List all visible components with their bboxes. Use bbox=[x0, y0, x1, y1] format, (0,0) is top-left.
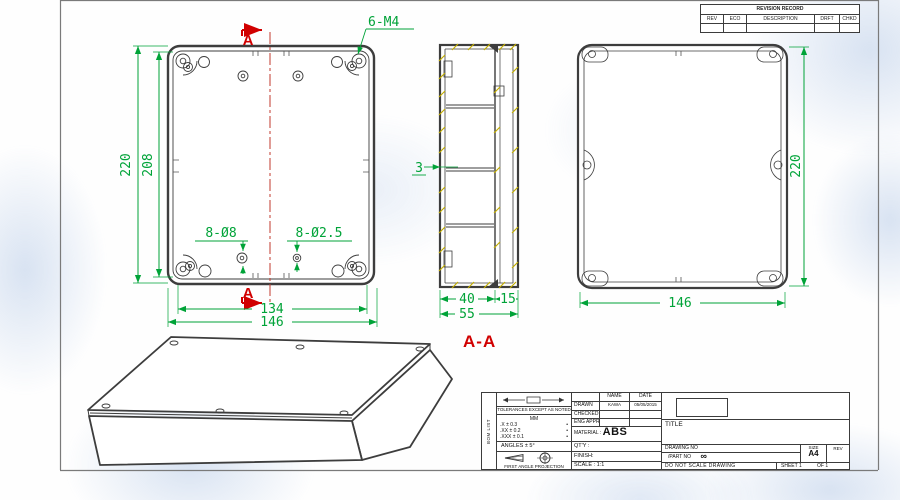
front-view bbox=[168, 46, 374, 284]
qty-row: QT'Y : bbox=[572, 442, 662, 452]
isometric-view bbox=[88, 337, 452, 465]
title-block-side-strip: BOM LIST bbox=[482, 393, 497, 469]
title-row: TITLE bbox=[662, 419, 849, 444]
name-header: NAME bbox=[600, 393, 630, 402]
dim-lid-depth: 15 bbox=[500, 292, 516, 307]
side-strip-label: BOM LIST bbox=[482, 393, 496, 469]
label-thread-holes: 6-M4 bbox=[368, 15, 399, 30]
dim-cover-height: 220 bbox=[789, 154, 804, 177]
dim-total-depth: 55 bbox=[459, 307, 475, 322]
size-cell: SIZE A4 bbox=[801, 445, 827, 462]
size-value: A4 bbox=[801, 451, 826, 457]
side-section-view bbox=[440, 45, 518, 287]
dimension-symbol-cell bbox=[497, 393, 572, 407]
logo-area bbox=[662, 393, 849, 419]
col-rev: REV bbox=[701, 15, 723, 23]
drawing-no-label: DRAWING NO bbox=[662, 445, 801, 453]
drawing-no-area: DRAWING NO /PART NO ∞ SIZE A4 REV bbox=[662, 444, 849, 462]
tolerance-heading: TOLERANCES EXCEPT AS NOTED bbox=[497, 407, 572, 415]
drawn-label: DRAWN bbox=[572, 402, 600, 411]
part-no-row: /PART NO ∞ bbox=[662, 453, 801, 462]
projection-symbol-cell bbox=[497, 452, 572, 464]
col-eco: ECO bbox=[723, 15, 746, 23]
first-angle-projection-icon bbox=[497, 452, 570, 464]
dim-front-inner-height: 208 bbox=[141, 153, 156, 176]
tolerance-row: .XXX ± 0.1 bbox=[500, 434, 524, 440]
section-letter-top: A bbox=[243, 32, 254, 49]
section-letter-bottom: A bbox=[243, 285, 254, 302]
sheet-label: SHEET 1 bbox=[777, 463, 817, 469]
scale-row: SCALE : 1:1 bbox=[572, 462, 662, 469]
finish-row: FINISH: bbox=[572, 452, 662, 462]
sheet-of-label: OF 1 bbox=[817, 463, 849, 469]
drawn-name: KAWA bbox=[600, 402, 630, 411]
col-description: DESCRIPTION bbox=[746, 15, 814, 23]
checked-label: CHECKED bbox=[572, 411, 600, 419]
drawn-date: 05/05/2015 bbox=[630, 402, 662, 411]
tolerance-dot: • bbox=[566, 434, 568, 440]
dim-cover-width: 146 bbox=[668, 296, 691, 311]
do-not-scale-note: DO NOT SCALE DRAWING bbox=[662, 463, 777, 469]
part-no-value: ∞ bbox=[700, 453, 706, 461]
angles-tolerance: ANGLES ± 5° bbox=[497, 442, 572, 452]
dimension-symbol-icon bbox=[497, 393, 570, 406]
bottom-row: DO NOT SCALE DRAWING SHEET 1 OF 1 bbox=[662, 462, 849, 469]
date-header: DATE bbox=[630, 393, 662, 402]
dim-wall-thickness: 3 bbox=[415, 161, 423, 176]
revision-record-empty-row bbox=[701, 23, 859, 32]
eng-appr-label: ENG APPR bbox=[572, 419, 600, 427]
col-drft: DRFT bbox=[814, 15, 839, 23]
material-value: ABS bbox=[603, 427, 628, 438]
tolerance-unit: MM bbox=[530, 416, 538, 422]
part-no-label: /PART NO bbox=[668, 454, 691, 460]
dim-base-depth: 40 bbox=[459, 292, 475, 307]
revision-record-title-row: REVISION RECORD bbox=[701, 5, 859, 14]
col-chkd: CHKD bbox=[839, 15, 859, 23]
drawing-sheet: { "colors": { "dimension_green": "#00a33… bbox=[0, 0, 900, 500]
label-large-holes: 8-Ø8 bbox=[205, 226, 236, 241]
revision-record-header-row: REV ECO DESCRIPTION DRFT CHKD bbox=[701, 14, 859, 23]
revision-record-title: REVISION RECORD bbox=[701, 5, 859, 14]
material-label: MATERIAL : bbox=[574, 430, 601, 436]
revision-record-table: REVISION RECORD REV ECO DESCRIPTION DRFT… bbox=[700, 4, 860, 33]
rev-cell: REV bbox=[827, 445, 849, 462]
dim-front-outer-height: 220 bbox=[119, 153, 134, 176]
projection-label: FIRST ANGLE PROJECTION bbox=[497, 464, 572, 469]
tolerance-table: MM .X ± 0.3• .XX ± 0.2• .XXX ± 0.1• bbox=[497, 415, 572, 442]
logo-box bbox=[676, 398, 728, 417]
material-row: MATERIAL : ABS bbox=[572, 427, 662, 442]
cover-view bbox=[578, 45, 787, 288]
label-small-holes: 8-Ø2.5 bbox=[296, 226, 343, 241]
section-view-label: A-A bbox=[463, 332, 496, 351]
dim-front-outer-width: 146 bbox=[260, 315, 283, 330]
title-block: BOM LIST TOLERANCES EXCEPT AS NOTED MM .… bbox=[481, 392, 850, 470]
